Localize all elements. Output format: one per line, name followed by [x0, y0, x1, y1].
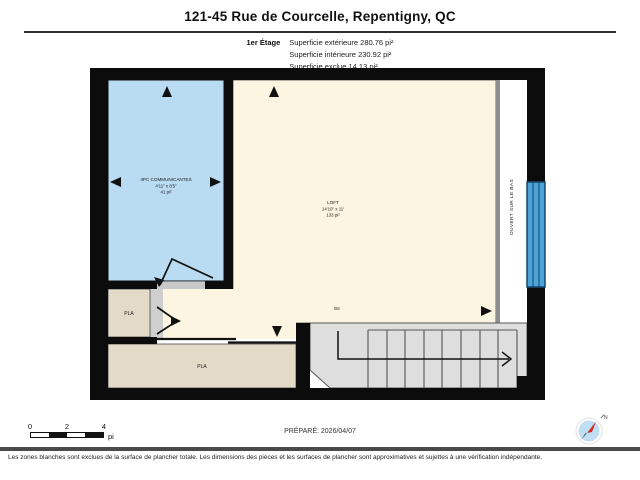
closet-lower-name: PLA: [197, 364, 207, 370]
bathroom-name: 4PC COMMUNICANTES: [140, 177, 191, 182]
loft-area: 133 pi²: [326, 213, 340, 218]
stairs-area: [310, 323, 527, 388]
compass-icon: N: [574, 411, 608, 447]
window-icon: [527, 182, 545, 287]
floorplan-drawing: 4PC COMMUNICANTES 4'11" x 8'5" 41 pi² LO…: [0, 0, 640, 480]
footer-divider: [0, 447, 640, 451]
loft-room: [233, 80, 496, 323]
half-wall-line: [496, 80, 500, 326]
loft-dims: 14'10" x 11': [322, 207, 344, 212]
loft-name: LOFT: [327, 200, 339, 205]
compass-north-label: N: [604, 415, 608, 421]
open-to-below-label: OUVERT SUR LE BAS: [509, 179, 515, 235]
stair-note-label: BS: [334, 306, 340, 311]
disclaimer-text: Les zones blanches sont exclues de la su…: [8, 454, 632, 461]
door-threshold: [157, 282, 205, 289]
sliding-door-icon: [157, 339, 296, 343]
closet-upper-name: PLA: [124, 311, 134, 317]
floorplan-page: 121-45 Rue de Courcelle, Repentigny, QC …: [0, 0, 640, 480]
prepared-date: PRÉPARÉ: 2026/04/07: [0, 428, 640, 435]
bathroom-area: 41 pi²: [161, 190, 173, 195]
bathroom-dims: 4'11" x 8'5": [155, 184, 177, 189]
